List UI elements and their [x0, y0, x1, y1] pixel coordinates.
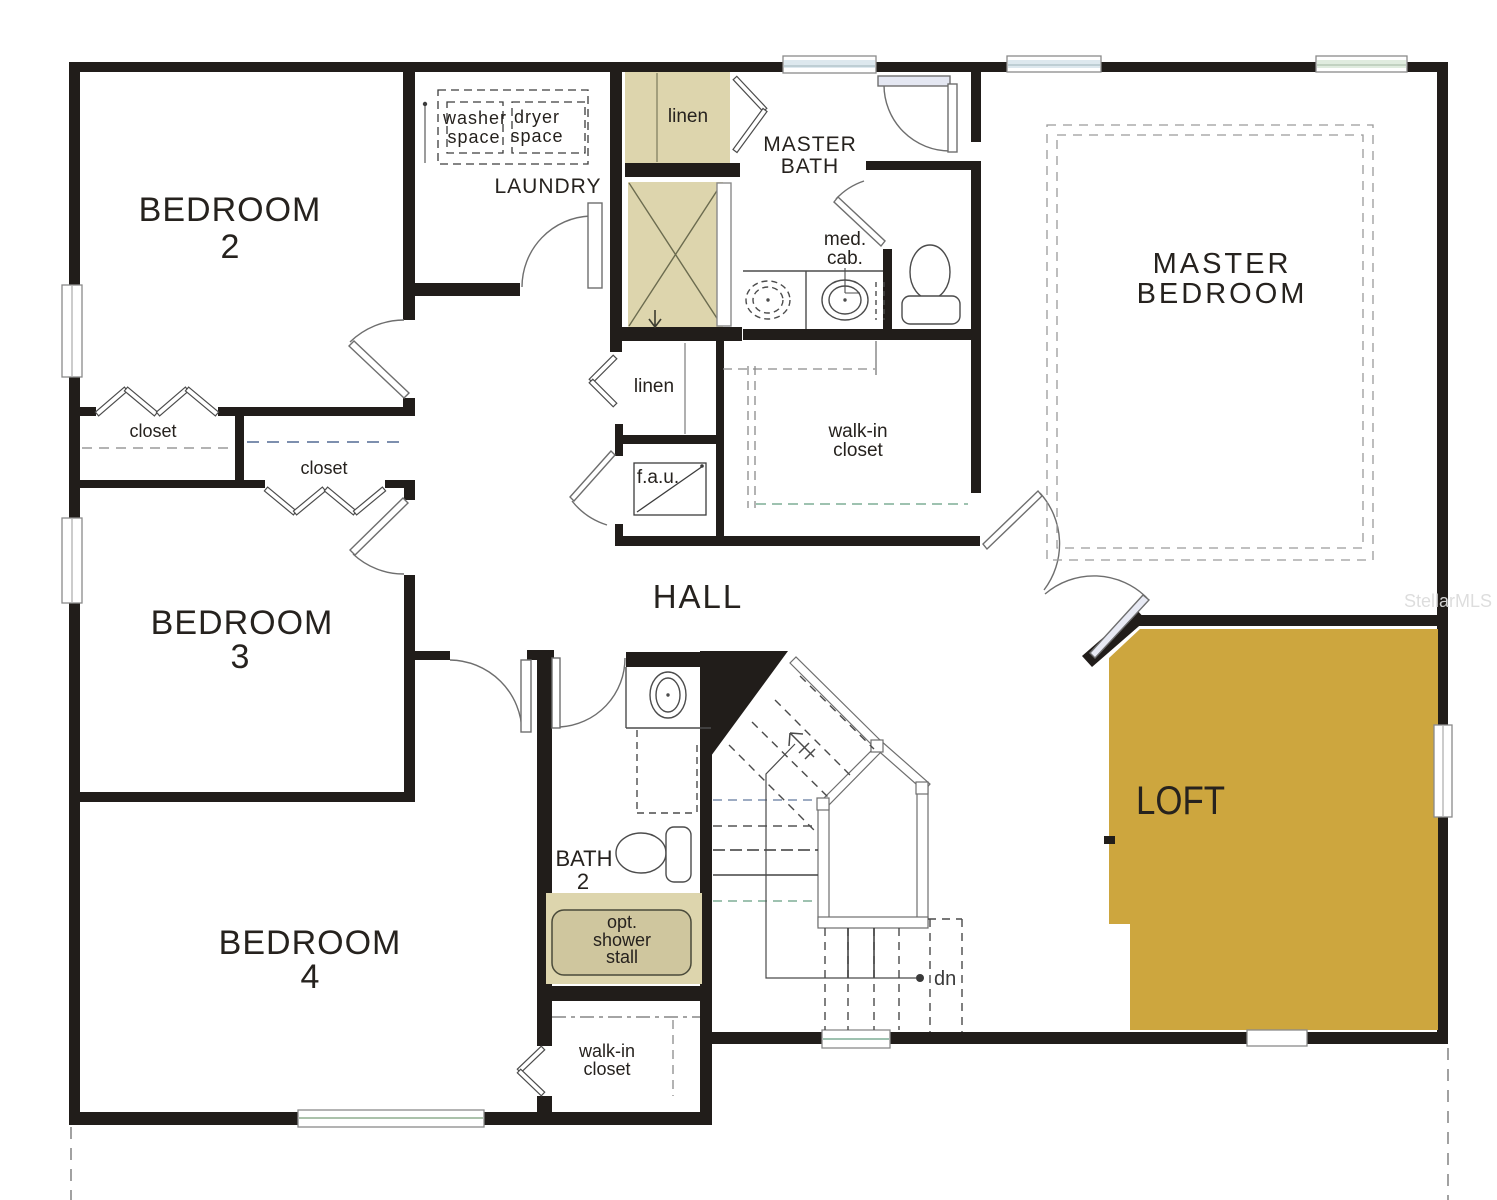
svg-text:BEDROOM: BEDROOM: [1137, 278, 1308, 310]
svg-text:dryer: dryer: [514, 107, 560, 127]
svg-text:space: space: [510, 126, 563, 146]
svg-text:dn: dn: [934, 968, 956, 990]
svg-text:LOFT: LOFT: [1136, 779, 1225, 823]
svg-text:f.a.u.: f.a.u.: [637, 467, 679, 488]
svg-text:4: 4: [301, 958, 320, 996]
svg-text:closet: closet: [129, 421, 176, 441]
svg-text:LAUNDRY: LAUNDRY: [495, 175, 602, 198]
svg-text:BATH: BATH: [781, 155, 839, 178]
svg-text:MASTER: MASTER: [763, 133, 857, 156]
svg-text:HALL: HALL: [653, 578, 744, 615]
svg-text:washer: washer: [442, 108, 507, 128]
svg-text:opt.: opt.: [607, 912, 637, 932]
svg-text:linen: linen: [634, 376, 674, 397]
svg-text:closet: closet: [300, 458, 347, 478]
svg-text:BEDROOM: BEDROOM: [151, 604, 334, 642]
svg-text:closet: closet: [583, 1059, 630, 1079]
svg-text:2: 2: [221, 228, 240, 266]
svg-text:BEDROOM: BEDROOM: [139, 191, 322, 229]
svg-text:MASTER: MASTER: [1153, 248, 1292, 280]
svg-text:stall: stall: [606, 947, 638, 967]
svg-text:linen: linen: [668, 106, 708, 127]
svg-text:StellarMLS: StellarMLS: [1404, 591, 1492, 611]
svg-text:walk-in: walk-in: [827, 421, 887, 442]
svg-text:walk-in: walk-in: [578, 1041, 635, 1061]
svg-text:BEDROOM: BEDROOM: [219, 924, 402, 962]
svg-text:closet: closet: [833, 440, 883, 461]
svg-text:space: space: [447, 127, 500, 147]
svg-text:med.: med.: [824, 229, 866, 250]
svg-text:3: 3: [231, 638, 250, 676]
svg-text:2: 2: [577, 869, 589, 894]
svg-text:BATH: BATH: [555, 846, 612, 871]
svg-text:cab.: cab.: [827, 248, 863, 269]
